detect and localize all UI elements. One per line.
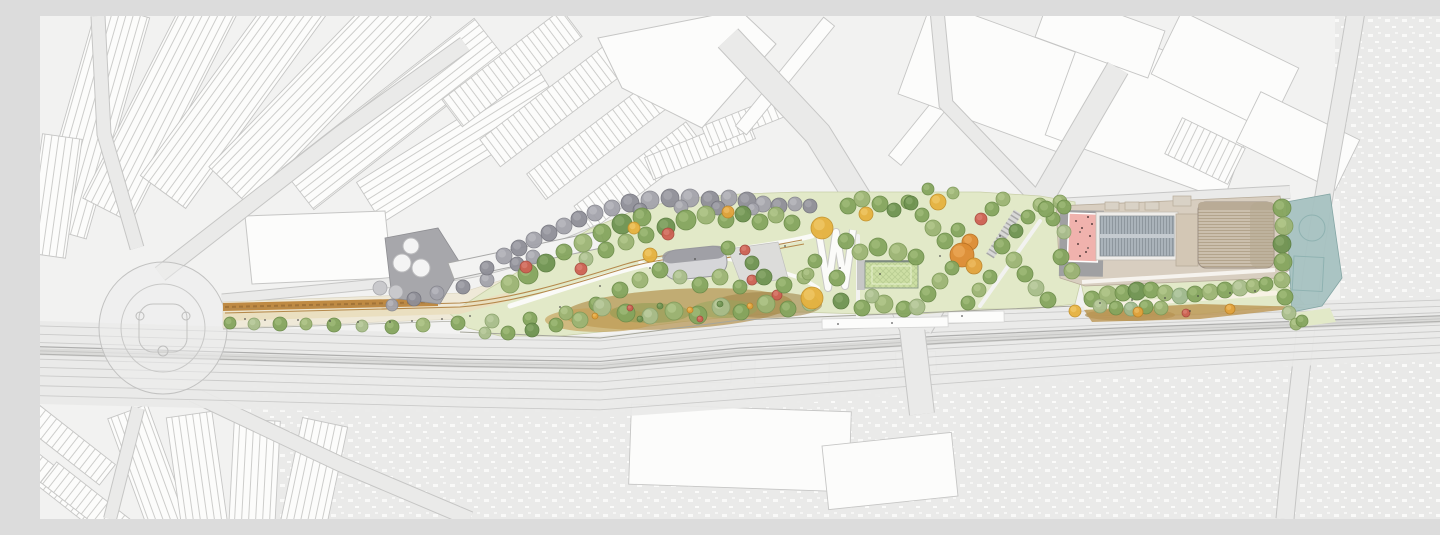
building-block [822, 432, 958, 509]
person-dot [879, 273, 881, 275]
person-dot [599, 285, 601, 287]
person-dot [1079, 231, 1081, 233]
person-dot [469, 315, 471, 317]
rooftop-structure [1145, 202, 1159, 210]
person-dot [1229, 292, 1231, 294]
rooftop-structure [1173, 196, 1191, 206]
person-dot [1164, 297, 1166, 299]
person-dot [441, 318, 443, 320]
person-dot [297, 319, 299, 321]
person-dot [784, 245, 786, 247]
building-block [629, 404, 852, 492]
person-dot [1099, 302, 1101, 304]
person-dot [999, 235, 1001, 237]
person-dot [559, 306, 561, 308]
sports-pitch [857, 260, 918, 290]
person-dot [649, 267, 651, 269]
station-platform [948, 311, 1004, 323]
person-dot [411, 320, 413, 322]
storage-tank [393, 254, 411, 272]
storage-tank [403, 238, 419, 254]
person-dot [357, 321, 359, 323]
person-dot [1189, 310, 1191, 312]
rooftop-structure [1125, 202, 1139, 210]
site-plan-canvas [40, 16, 1440, 519]
rooftop-structure [1105, 202, 1119, 210]
person-dot [1087, 247, 1089, 249]
storage-tank [389, 285, 403, 299]
retaining-wall [857, 260, 865, 290]
person-dot [837, 323, 839, 325]
person-dot [264, 319, 266, 321]
person-dot [329, 320, 331, 322]
person-dot [739, 253, 741, 255]
person-dot [939, 255, 941, 257]
person-dot [694, 258, 696, 260]
station-platform [822, 317, 948, 329]
person-dot [839, 267, 841, 269]
building-block [245, 211, 392, 284]
masterplan-image [40, 16, 1440, 519]
cultural-complex [1056, 196, 1292, 286]
person-dot [244, 318, 246, 320]
person-dot [891, 322, 893, 324]
person-dot [1131, 299, 1133, 301]
mid-court [1176, 214, 1198, 266]
pink-rooftop-court [1067, 213, 1099, 262]
person-dot [961, 315, 963, 317]
person-dot [389, 321, 391, 323]
person-dot [1197, 295, 1199, 297]
person-dot [1254, 290, 1256, 292]
storage-tank [373, 281, 387, 295]
storage-tank [412, 259, 430, 277]
roundabout [99, 262, 227, 394]
